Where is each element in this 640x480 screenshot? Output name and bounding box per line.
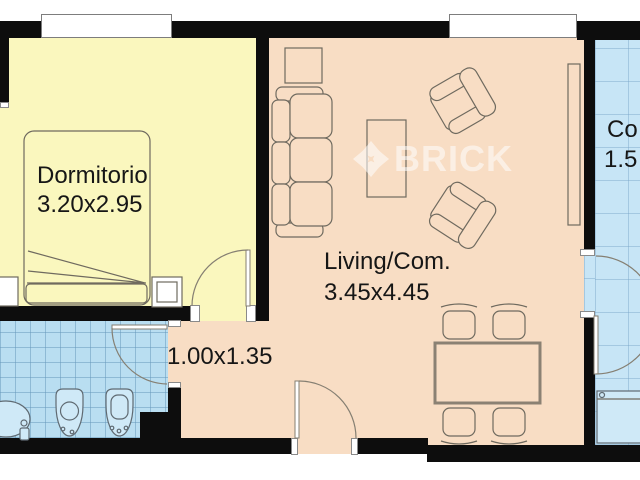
floor-plan: BRICK Dormitorio 3.20x2.95 Living/Com. 3…	[0, 0, 640, 480]
entry-door-icon	[295, 381, 356, 438]
bathroom-door-icon	[112, 325, 167, 384]
kitchen-door-icon	[594, 256, 640, 374]
kitchen-counter-icon	[597, 391, 640, 443]
brick-pinwheel-logo-icon	[352, 140, 390, 178]
sofa-icon	[272, 87, 332, 237]
room-size-hall: 1.00x1.35	[167, 344, 272, 370]
armchair-icon	[426, 65, 499, 137]
dining-chair-icon	[441, 304, 477, 339]
furniture-layer	[0, 0, 640, 480]
sink-icon	[0, 401, 30, 440]
brand-watermark: BRICK	[352, 138, 513, 180]
armchair-icon	[425, 178, 499, 251]
bedroom-door-icon	[192, 250, 250, 306]
room-label-living: Living/Com.	[324, 249, 451, 275]
room-size-dormitorio: 3.20x2.95	[37, 192, 142, 218]
bookshelf-icon	[568, 64, 580, 225]
toilet-icon	[56, 389, 83, 436]
dining-chair-icon	[491, 408, 527, 444]
dining-chair-icon	[491, 304, 527, 339]
room-label-dormitorio: Dormitorio	[37, 163, 148, 189]
dining-chair-icon	[441, 408, 477, 444]
dining-table-icon	[435, 343, 540, 403]
room-size-living: 3.45x4.45	[324, 280, 429, 306]
bidet-icon	[106, 389, 133, 436]
brand-watermark-text: BRICK	[394, 138, 513, 180]
room-size-cocina: 1.5	[604, 147, 637, 173]
room-label-cocina: Co	[607, 117, 638, 143]
side-table-icon	[285, 48, 322, 83]
